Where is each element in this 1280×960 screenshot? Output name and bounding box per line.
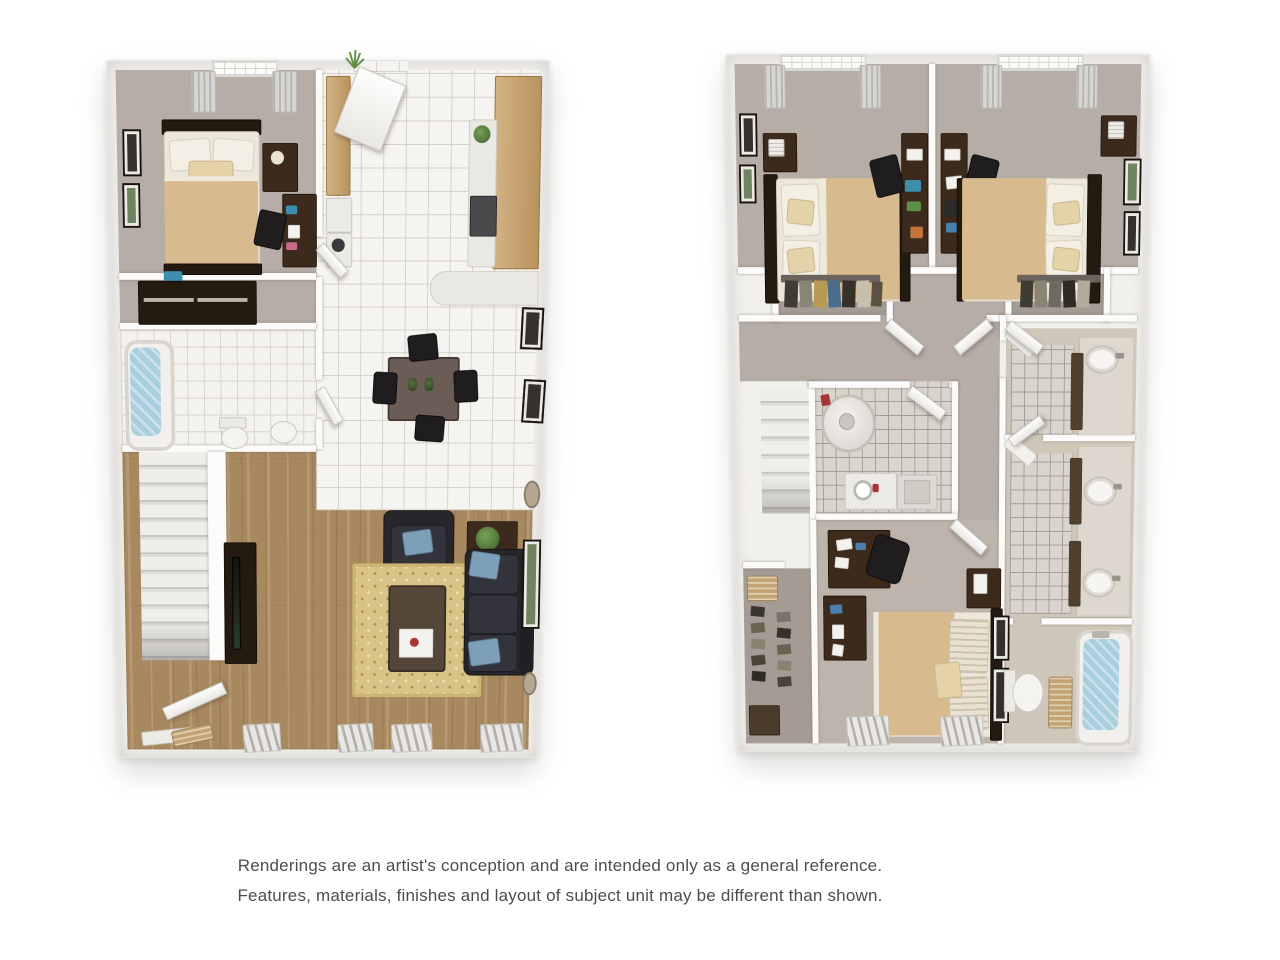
hanging-clothes xyxy=(784,280,798,307)
bed-blanket xyxy=(164,176,258,272)
wall-art xyxy=(122,129,142,176)
hanging-clothes xyxy=(827,280,841,307)
table-lamp xyxy=(269,149,286,167)
desk-clutter xyxy=(910,227,923,239)
table-lamp xyxy=(768,139,784,157)
disclaimer-line-1: Renderings are an artist's conception an… xyxy=(0,851,1120,881)
hanging-clothes xyxy=(814,280,828,307)
hanging-clothes xyxy=(1077,280,1091,307)
bedroom-window xyxy=(212,60,278,77)
shoes xyxy=(751,654,766,665)
accent-pillow xyxy=(934,661,963,699)
washer-dial xyxy=(853,480,872,500)
towel-stack xyxy=(1048,677,1073,729)
desk-papers xyxy=(834,557,849,569)
wall-art xyxy=(739,113,758,156)
hallway-floor xyxy=(958,381,1000,520)
table-plant xyxy=(424,378,433,391)
tv xyxy=(232,557,241,650)
wall-art xyxy=(520,307,544,350)
wall-art xyxy=(992,616,1009,661)
dining-chair xyxy=(414,414,445,442)
shoes xyxy=(750,606,765,617)
desk-clutter xyxy=(856,543,866,550)
toilet xyxy=(1012,673,1043,712)
shoes xyxy=(777,660,791,671)
tub-faucet xyxy=(1092,631,1109,638)
faucet xyxy=(1113,484,1122,490)
dining-chair xyxy=(453,370,478,403)
desk-papers xyxy=(832,644,845,657)
dining-chair xyxy=(407,333,439,363)
bathroom-sink xyxy=(270,421,297,443)
utility-item xyxy=(820,394,831,407)
shower xyxy=(1010,453,1074,613)
window-blinds xyxy=(242,723,281,753)
grass-sprig xyxy=(340,50,368,68)
wall-mirror xyxy=(522,672,537,695)
interior-wall xyxy=(929,64,935,267)
interior-wall xyxy=(739,315,881,322)
hanging-clothes xyxy=(842,280,856,307)
hanging-clothes xyxy=(871,281,883,306)
bedroom-a-window xyxy=(780,54,867,71)
curtain xyxy=(1076,65,1098,109)
accent-pillow xyxy=(1052,200,1081,226)
bedroom-b-window xyxy=(997,54,1084,71)
washer xyxy=(326,198,352,233)
shoes xyxy=(752,671,766,682)
faucet xyxy=(1115,353,1124,359)
closet-door-track xyxy=(144,298,194,302)
table-plant xyxy=(408,378,417,391)
vanity-drawers xyxy=(1068,541,1081,607)
interior-wall xyxy=(1103,267,1110,321)
dryer-door xyxy=(904,480,930,504)
interior-wall xyxy=(316,419,322,449)
hanging-clothes xyxy=(1063,280,1076,307)
sofa-cushion xyxy=(467,594,518,634)
interior-wall xyxy=(809,381,910,388)
decor-item xyxy=(410,638,419,647)
hanging-clothes xyxy=(857,280,870,307)
disclaimer-line-2: Features, materials, finishes and layout… xyxy=(0,881,1120,911)
closet-door-track xyxy=(197,298,247,302)
kitchen-cabinets xyxy=(492,76,542,269)
window-blinds xyxy=(337,723,374,753)
storage-basket xyxy=(747,576,779,601)
wall-art xyxy=(1123,211,1141,255)
hanging-clothes xyxy=(1048,280,1062,307)
desk-papers xyxy=(907,149,923,161)
curtain xyxy=(763,65,785,109)
shoes xyxy=(751,622,766,633)
throw-pillow xyxy=(402,529,434,557)
shoes xyxy=(777,676,792,687)
stove xyxy=(470,196,498,237)
interior-wall xyxy=(743,562,785,568)
faucet xyxy=(1112,576,1121,581)
wall-art xyxy=(521,540,541,629)
closet-unit xyxy=(138,281,257,325)
curtain xyxy=(980,65,1002,109)
wall-art xyxy=(122,183,140,228)
interior-wall xyxy=(1041,618,1132,624)
laptop xyxy=(944,200,957,217)
interior-wall xyxy=(316,277,323,380)
desk-clutter xyxy=(286,206,297,215)
wall-mirror xyxy=(524,481,541,509)
curtain xyxy=(191,71,216,113)
curtain xyxy=(272,71,297,113)
hanging-clothes xyxy=(1034,280,1047,307)
desk-papers xyxy=(832,625,844,639)
accent-pillow xyxy=(1052,246,1081,272)
desk-clutter xyxy=(907,201,921,211)
dining-chair xyxy=(372,372,398,405)
desk-clutter xyxy=(905,180,921,192)
water-heater-cap xyxy=(839,413,855,430)
hanging-clothes xyxy=(1020,280,1033,307)
bathtub-water xyxy=(130,348,162,436)
desk-clutter xyxy=(830,604,843,614)
shoes xyxy=(751,639,765,650)
shoes xyxy=(777,644,792,655)
picture-frame xyxy=(973,574,987,594)
window-blinds xyxy=(846,715,890,747)
staircase-shadow xyxy=(762,476,810,513)
window-blinds xyxy=(391,723,433,753)
dryer-door xyxy=(332,238,345,252)
disclaimer: Renderings are an artist's conception an… xyxy=(0,851,1120,911)
floor-plan-rendering-page: Renderings are an artist's conception an… xyxy=(0,0,1280,960)
hanging-clothes xyxy=(799,280,813,307)
desk-papers xyxy=(288,225,300,239)
detergent-bottle xyxy=(873,484,879,492)
wall-art xyxy=(1123,159,1142,206)
interior-wall xyxy=(952,381,958,513)
interior-wall xyxy=(816,513,957,519)
throw-pillow xyxy=(468,638,501,667)
dining-table xyxy=(388,357,460,421)
wall-art xyxy=(521,379,546,423)
wall-art xyxy=(739,164,757,203)
vanity-drawers xyxy=(1070,353,1083,430)
toilet xyxy=(221,427,249,449)
desk-clutter xyxy=(286,242,297,250)
staircase-shadow xyxy=(142,620,210,661)
storage-box xyxy=(749,705,780,735)
window-blinds xyxy=(480,723,523,753)
throw-pillow xyxy=(468,551,500,580)
curtain xyxy=(859,65,881,109)
vanity-drawers xyxy=(1069,458,1082,525)
interior-wall xyxy=(1043,435,1135,442)
accent-pillow xyxy=(786,198,815,226)
second-floor-plan xyxy=(725,54,1150,752)
desk-papers xyxy=(944,149,960,161)
desk-papers xyxy=(836,538,853,551)
first-floor-plan xyxy=(106,60,550,758)
table-lamp xyxy=(1108,121,1124,139)
shoes xyxy=(776,611,791,622)
kitchen-peninsula-counter xyxy=(430,271,539,305)
accent-pillow xyxy=(786,246,815,274)
shoes xyxy=(777,627,792,638)
window-blinds xyxy=(940,715,984,747)
bathtub-water xyxy=(1082,639,1119,730)
